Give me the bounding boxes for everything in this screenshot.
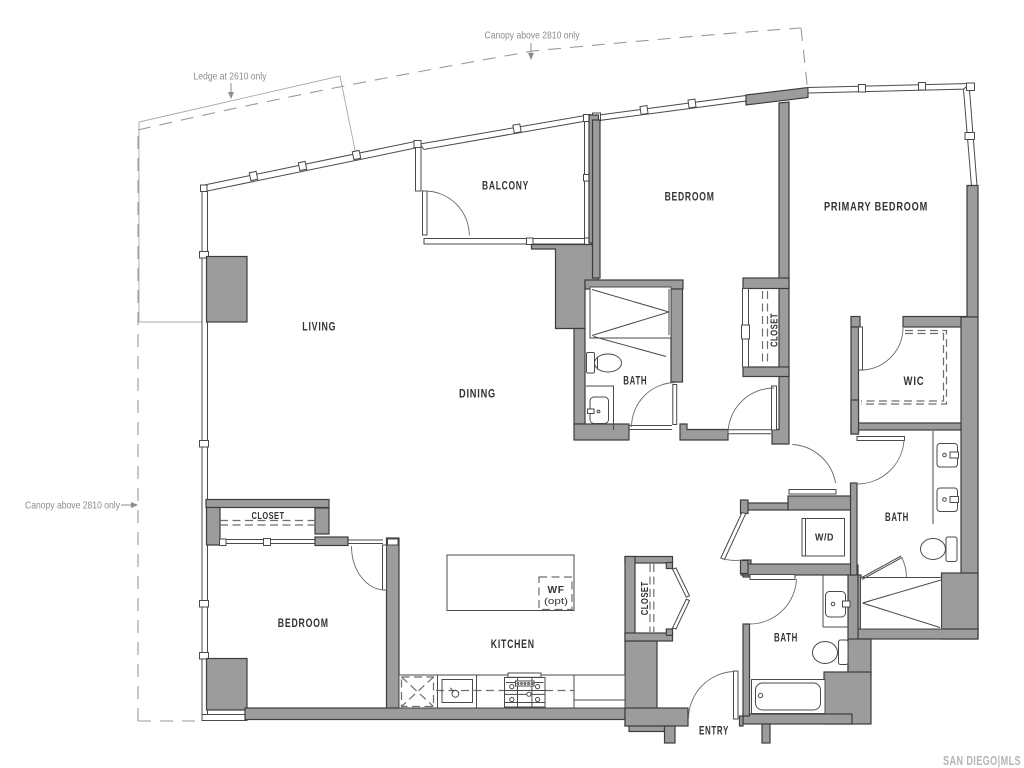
svg-text:BEDROOM: BEDROOM [278, 618, 329, 630]
svg-text:CLOSET: CLOSET [770, 313, 781, 347]
svg-text:(opt): (opt) [544, 596, 568, 607]
svg-text:WF: WF [548, 585, 565, 596]
svg-text:Canopy above 2810 only: Canopy above 2810 only [485, 30, 581, 42]
svg-text:WIC: WIC [904, 376, 925, 388]
svg-text:CLOSET: CLOSET [640, 581, 651, 615]
svg-text:LIVING: LIVING [302, 322, 336, 334]
svg-text:BALCONY: BALCONY [482, 181, 529, 193]
svg-text:Ledge at 2610 only: Ledge at 2610 only [194, 71, 268, 83]
svg-text:CLOSET: CLOSET [252, 511, 285, 522]
svg-text:BATH: BATH [885, 512, 909, 524]
svg-text:ENTRY: ENTRY [699, 726, 729, 738]
svg-text:SAN DIEGO|MLS: SAN DIEGO|MLS [943, 753, 1021, 768]
svg-text:PRIMARY BEDROOM: PRIMARY BEDROOM [824, 202, 928, 214]
svg-text:BATH: BATH [774, 632, 798, 644]
svg-text:BEDROOM: BEDROOM [665, 191, 715, 203]
svg-text:KITCHEN: KITCHEN [491, 639, 535, 651]
svg-text:W/D: W/D [815, 532, 834, 543]
svg-text:Canopy above 2810 only: Canopy above 2810 only [25, 500, 121, 512]
svg-text:BATH: BATH [623, 376, 647, 388]
svg-text:DINING: DINING [459, 388, 496, 400]
